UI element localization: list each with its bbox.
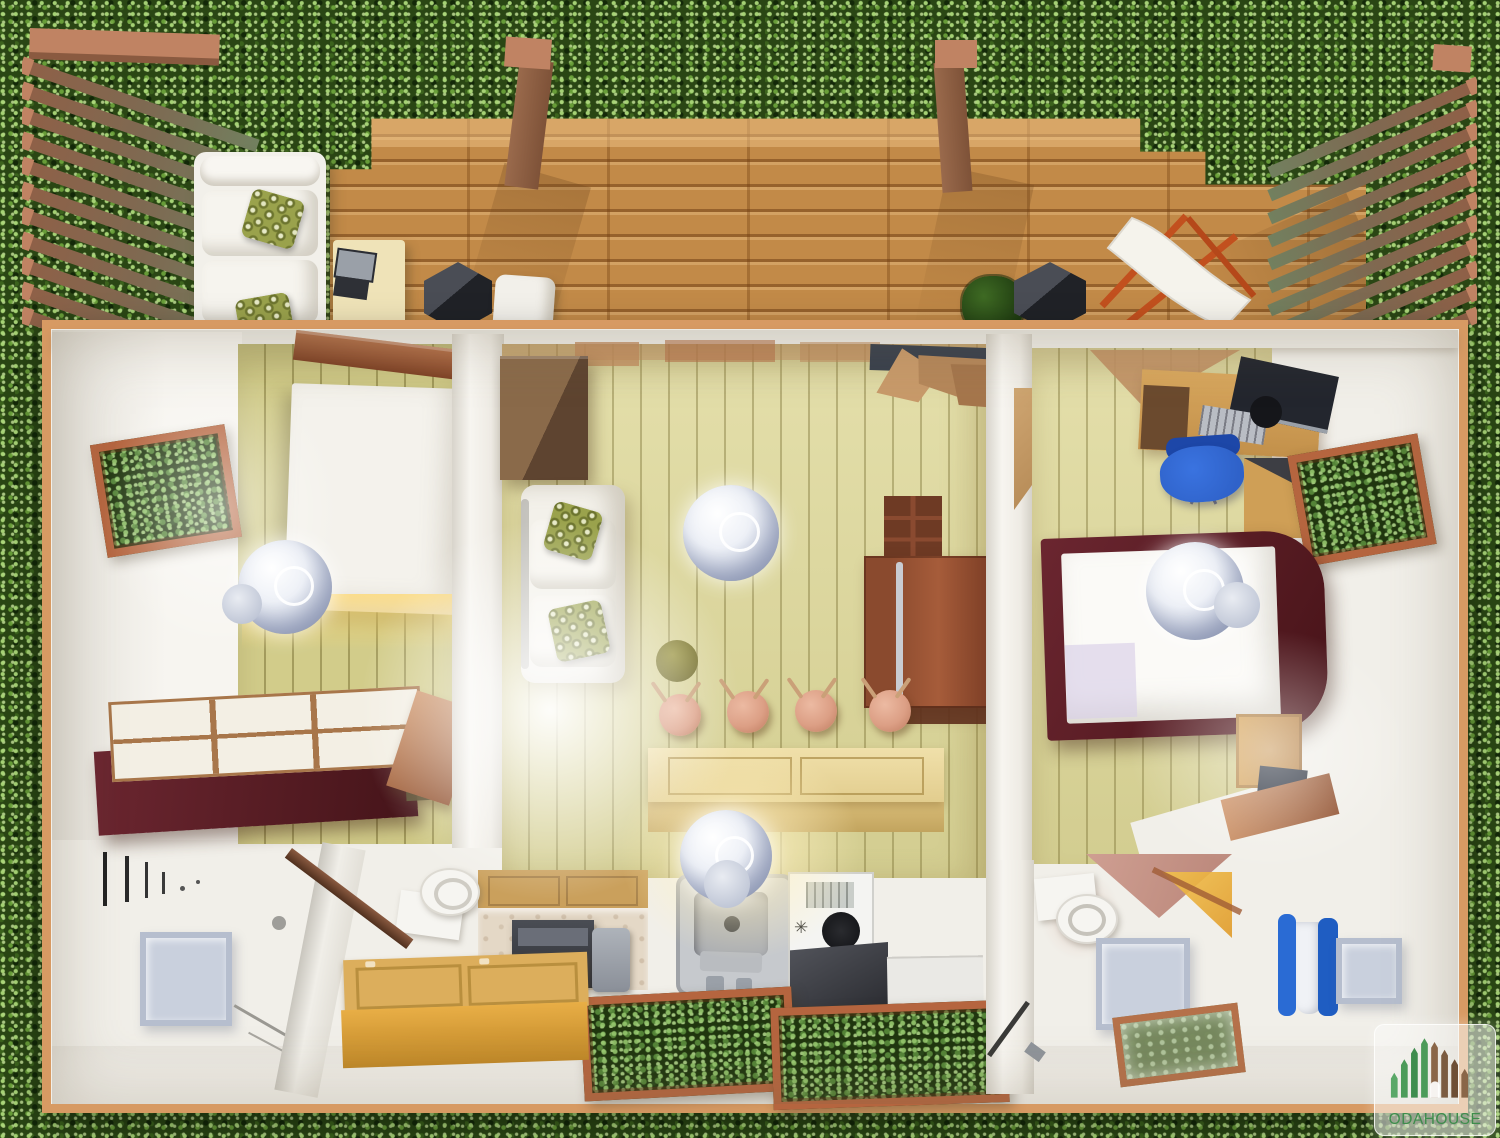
bar-stool (869, 690, 911, 732)
laptop (331, 248, 376, 303)
bed-pillow (1065, 643, 1138, 719)
sink-ledge (700, 951, 763, 973)
sofa-pillow (547, 599, 611, 663)
lamp-side-sphere (704, 860, 750, 908)
counter-routed-panel (800, 757, 924, 795)
wall-hook (125, 856, 129, 902)
screen-cap-beam (1432, 44, 1472, 73)
south-wall-window (579, 987, 796, 1102)
round-side-table (656, 640, 698, 682)
counter-routed-panel (668, 757, 792, 795)
brand-watermark: ODAHOUSE (1374, 1024, 1496, 1136)
bench-handle (479, 958, 489, 964)
pendant-lamp (683, 485, 779, 581)
toilet-seat-ring (434, 878, 472, 910)
bench-routed-panel (467, 962, 578, 1006)
bar-counter-top (648, 748, 944, 802)
sofa-back-rail (521, 499, 529, 669)
stove-control-panel (806, 882, 854, 908)
kitchen-upper-shelf (884, 496, 942, 562)
pendant-lamp (238, 540, 332, 634)
screen-cap-beam (29, 28, 220, 66)
towel-bar (1318, 918, 1338, 1016)
wall-hook (103, 852, 107, 906)
south-wall-window (770, 1000, 1009, 1110)
kitchen-lower-cabinet-top (478, 870, 648, 908)
bench-handle (365, 961, 375, 967)
laptop-keyboard (333, 276, 369, 301)
shower-tray (140, 932, 232, 1026)
bench-routed-panel (355, 964, 462, 1010)
toilet-seat-ring (1068, 904, 1106, 936)
cabinet-routed-door (566, 876, 638, 906)
wall-kitchen-bathroom (986, 860, 1034, 1094)
stove-burner (822, 912, 860, 950)
living-wardrobe (500, 356, 588, 480)
wall-hook-dot (180, 886, 185, 891)
towel-bar (1278, 914, 1296, 1016)
pendant-lamp (1146, 542, 1244, 640)
wall-left-living (452, 334, 504, 848)
stove-burner-icon: ✳ (794, 918, 808, 938)
bar-stool (659, 694, 701, 736)
sofa-back-cushion (200, 156, 320, 186)
sink-drain (724, 916, 740, 932)
wood-bench-front (341, 1002, 589, 1069)
grinder (592, 928, 630, 992)
desk-speaker (1250, 396, 1282, 428)
left-bedroom-window (90, 424, 242, 558)
pergola-post-cap (935, 40, 977, 68)
left-bed-mattress (108, 686, 424, 782)
lamp-ring-highlight (719, 512, 760, 553)
living-ceiling-rafter (665, 340, 775, 362)
deck-lounge-chair (1088, 208, 1268, 336)
cabinet-handle (896, 562, 903, 702)
kitchen-tall-cabinet (864, 556, 988, 708)
lamp-side-sphere (1214, 582, 1260, 628)
floorplan-scene: ✳ (0, 0, 1500, 1138)
pergola-post-cap (504, 36, 552, 69)
wall-shelf-tray (1336, 938, 1402, 1004)
wall-hook (162, 872, 165, 894)
cabinet-routed-door (488, 876, 560, 906)
pendant-lamp (680, 810, 772, 902)
wall-hook (145, 862, 148, 898)
deck-top-plank-highlight (370, 117, 1142, 147)
lamp-ring-highlight (274, 566, 314, 606)
wall-hook-dot (196, 880, 200, 884)
coffee-machine-top (518, 928, 588, 946)
living-ceiling-rafter (800, 342, 880, 362)
bar-stool (795, 690, 837, 732)
right-bedroom-window (1287, 433, 1436, 566)
bar-stool (727, 691, 769, 733)
brand-watermark-label: ODAHOUSE (1375, 1111, 1495, 1129)
lamp-side-sphere (222, 584, 262, 624)
floor-drain-dot (272, 916, 286, 930)
odahouse-logo-icon (1389, 1033, 1481, 1099)
